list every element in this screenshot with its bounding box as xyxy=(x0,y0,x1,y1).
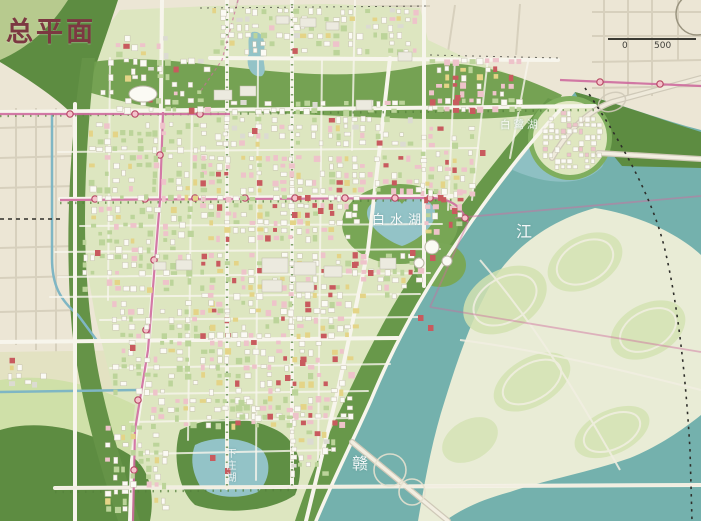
master-plan-map: 总平面 白水湖 白鹭湖 下庄湖 赣 江 0 500 xyxy=(0,0,701,521)
scale-bar: 0 500 xyxy=(608,38,701,52)
scale-zero: 0 xyxy=(622,41,628,51)
map-art xyxy=(0,0,701,521)
scale-500: 500 xyxy=(654,41,671,51)
